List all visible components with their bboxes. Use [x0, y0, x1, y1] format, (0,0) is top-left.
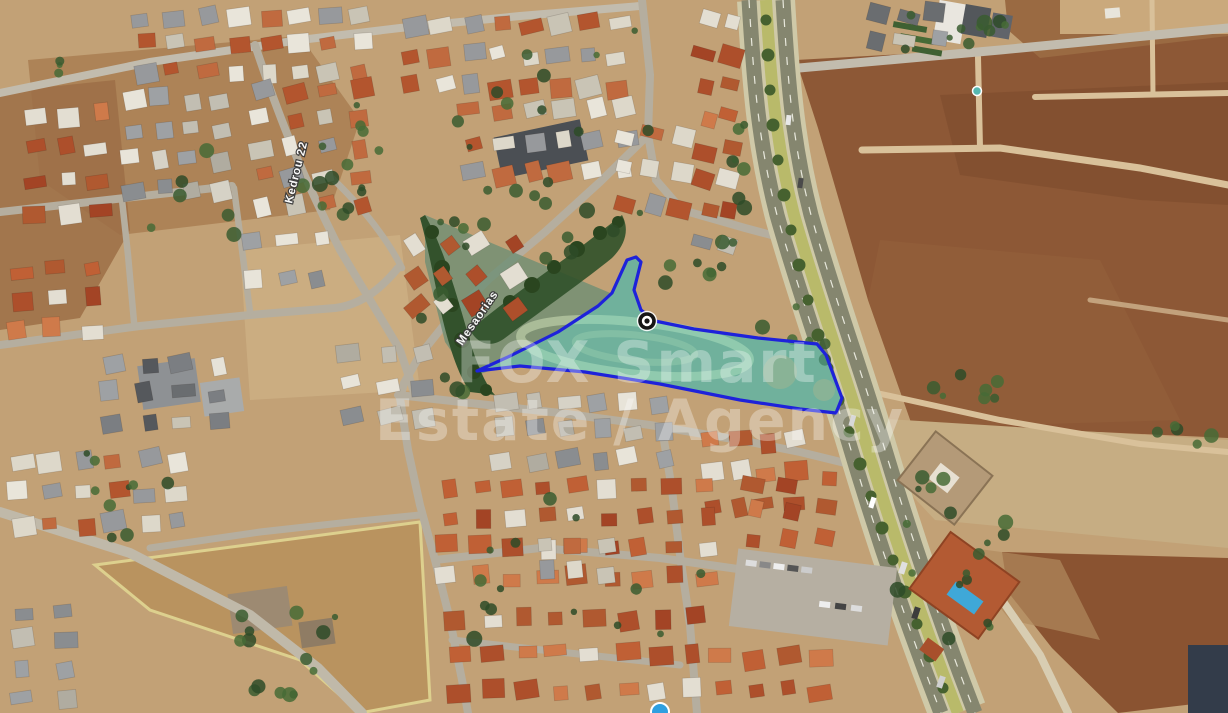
building	[125, 124, 143, 139]
tree	[318, 201, 327, 210]
tree	[632, 28, 638, 34]
building	[749, 684, 765, 698]
building	[443, 512, 458, 526]
tree	[658, 275, 673, 290]
building	[435, 534, 458, 553]
tree	[657, 631, 664, 638]
tree	[915, 470, 929, 484]
tree	[998, 515, 1013, 530]
building	[781, 679, 796, 695]
building	[45, 260, 65, 275]
building	[682, 677, 701, 697]
tree	[572, 514, 579, 521]
tree	[357, 187, 366, 196]
building	[6, 480, 27, 500]
building	[446, 684, 471, 704]
tree	[437, 219, 444, 226]
tree	[342, 202, 354, 214]
building	[350, 171, 371, 186]
tree	[245, 626, 255, 636]
building	[134, 62, 160, 85]
tree	[537, 105, 546, 114]
tree	[449, 216, 460, 227]
tree	[416, 313, 427, 324]
tree	[717, 262, 726, 271]
tree	[90, 456, 100, 466]
map-canvas: Mesaorias Kedrou 22 FOX Smart Estate / A…	[0, 0, 1228, 713]
building	[628, 537, 646, 557]
tree	[927, 381, 940, 394]
tree	[990, 394, 999, 403]
building	[809, 649, 833, 667]
building	[121, 182, 146, 202]
satellite-map[interactable]: Mesaorias Kedrou 22 FOX Smart Estate / A…	[0, 0, 1228, 713]
building	[100, 414, 123, 434]
building	[442, 479, 458, 499]
tree	[173, 189, 187, 203]
tree	[1001, 21, 1009, 29]
tree	[947, 35, 953, 41]
tree	[579, 203, 595, 219]
tree	[319, 143, 327, 151]
building	[57, 107, 80, 128]
tree	[497, 585, 504, 592]
tree	[1170, 421, 1180, 431]
building	[12, 292, 34, 312]
tree	[289, 606, 303, 620]
tree	[300, 653, 312, 665]
building	[226, 6, 251, 27]
building	[527, 453, 549, 473]
building	[22, 206, 45, 224]
tree	[522, 49, 533, 60]
tree	[908, 569, 916, 577]
building	[545, 46, 571, 64]
tree	[275, 687, 287, 699]
building	[317, 109, 333, 126]
building	[742, 649, 766, 671]
tree	[539, 252, 552, 265]
building	[640, 159, 660, 178]
tree	[466, 631, 482, 647]
building	[54, 632, 78, 649]
building	[503, 574, 520, 587]
building	[631, 478, 647, 491]
tree	[740, 121, 748, 129]
building	[671, 161, 694, 183]
building	[661, 478, 682, 495]
building	[165, 33, 184, 49]
building	[288, 113, 305, 130]
building	[538, 538, 552, 552]
building	[62, 172, 76, 185]
building	[647, 682, 666, 701]
tree	[926, 482, 937, 493]
building	[348, 6, 370, 25]
building	[601, 513, 617, 526]
building	[449, 646, 471, 663]
building	[319, 36, 336, 50]
tree	[491, 86, 503, 98]
tree	[940, 393, 946, 399]
tree	[564, 245, 579, 260]
tree	[251, 679, 265, 693]
building	[131, 13, 149, 28]
building	[720, 201, 737, 219]
tree	[696, 569, 705, 578]
building	[723, 139, 743, 156]
tree	[55, 57, 64, 66]
building	[616, 159, 632, 174]
tree	[462, 243, 470, 251]
building	[167, 452, 188, 474]
building	[171, 384, 195, 398]
tree	[147, 223, 156, 232]
tree	[537, 69, 551, 83]
tree	[973, 548, 985, 560]
tree	[915, 486, 921, 492]
tree	[458, 223, 469, 234]
tree	[477, 217, 491, 231]
tree	[956, 581, 963, 588]
building	[551, 98, 576, 119]
building	[581, 161, 602, 180]
building	[15, 660, 29, 678]
building	[354, 32, 373, 49]
building	[492, 136, 515, 151]
tree	[529, 190, 540, 201]
tree	[129, 480, 139, 490]
tree	[737, 162, 751, 176]
tree	[998, 529, 1010, 541]
building	[82, 325, 104, 340]
building	[434, 565, 456, 584]
building	[556, 130, 572, 148]
building	[120, 148, 140, 164]
tree	[693, 259, 702, 268]
tree	[104, 499, 116, 511]
building	[318, 7, 342, 25]
tree	[375, 146, 384, 155]
tree	[54, 69, 63, 78]
tree	[664, 259, 676, 271]
building	[138, 33, 156, 48]
building	[923, 1, 946, 23]
building	[583, 609, 607, 627]
building	[708, 648, 731, 662]
building	[148, 86, 169, 106]
building	[103, 354, 126, 375]
tree	[978, 392, 990, 404]
building	[462, 73, 480, 94]
building	[484, 615, 502, 628]
tree	[176, 175, 189, 188]
building	[699, 542, 718, 558]
tree	[631, 583, 642, 594]
tree	[483, 186, 492, 195]
building	[230, 36, 252, 54]
building	[701, 507, 715, 526]
tree	[901, 45, 910, 54]
building	[655, 610, 671, 630]
tree	[614, 622, 622, 630]
tree	[955, 369, 966, 380]
tree	[574, 127, 584, 137]
building	[746, 534, 760, 548]
tree	[562, 232, 574, 244]
tree	[440, 372, 450, 382]
building	[142, 358, 158, 374]
tree	[342, 159, 354, 171]
building	[715, 680, 732, 695]
building	[57, 136, 75, 155]
tree	[354, 102, 360, 108]
building	[12, 516, 37, 538]
tree	[310, 667, 318, 675]
building	[99, 379, 119, 401]
building	[85, 286, 101, 306]
building	[315, 231, 330, 246]
tree	[222, 209, 235, 222]
tree	[984, 540, 991, 547]
building	[402, 15, 429, 39]
building	[597, 567, 616, 585]
building	[593, 452, 609, 471]
tree	[983, 619, 992, 628]
building	[612, 95, 636, 118]
building	[494, 16, 510, 31]
building	[686, 606, 706, 625]
building	[58, 203, 82, 226]
building	[10, 267, 34, 281]
building	[158, 179, 173, 194]
building	[209, 180, 232, 203]
tree	[543, 492, 557, 506]
building	[75, 485, 91, 499]
tree	[890, 582, 906, 598]
building	[619, 683, 639, 696]
building	[685, 644, 700, 664]
tree	[715, 235, 730, 250]
building	[931, 30, 948, 47]
building	[11, 626, 35, 648]
tree	[474, 574, 486, 586]
building	[443, 611, 465, 632]
building	[667, 565, 683, 583]
building	[184, 93, 202, 111]
building	[696, 478, 713, 492]
building	[617, 610, 639, 632]
building	[36, 451, 63, 474]
building	[24, 108, 47, 126]
building	[426, 47, 451, 69]
building	[57, 689, 77, 709]
tree	[944, 507, 957, 520]
building	[42, 517, 57, 529]
tree	[226, 227, 241, 242]
building	[275, 233, 298, 246]
tree	[907, 11, 916, 20]
tree	[963, 38, 974, 49]
building	[489, 452, 512, 471]
building	[776, 477, 798, 494]
tree	[433, 286, 448, 301]
building	[566, 560, 583, 579]
tree	[325, 171, 339, 185]
building	[814, 528, 835, 547]
tree	[732, 157, 739, 164]
watermark-line1: FOX Smart	[456, 330, 817, 396]
tree	[452, 115, 464, 127]
building	[6, 320, 26, 340]
building	[783, 502, 802, 521]
building	[212, 122, 232, 139]
building	[475, 480, 491, 493]
building	[482, 678, 505, 698]
building	[208, 390, 226, 404]
tree	[593, 52, 599, 58]
building	[249, 107, 269, 125]
tree	[703, 267, 717, 281]
building	[581, 48, 596, 62]
building	[134, 381, 153, 403]
building	[577, 12, 600, 31]
tree	[91, 486, 100, 495]
building	[457, 102, 480, 116]
tree	[991, 375, 1004, 388]
tree	[637, 210, 643, 216]
building	[504, 509, 526, 528]
tree	[543, 177, 553, 187]
tree	[509, 184, 523, 198]
building	[649, 646, 674, 666]
building	[579, 648, 599, 662]
building	[476, 510, 491, 529]
tree	[977, 15, 993, 31]
building	[352, 139, 368, 159]
tree	[732, 192, 745, 205]
building	[465, 14, 485, 34]
building	[162, 10, 185, 28]
building	[637, 507, 654, 524]
tree	[936, 472, 950, 486]
building	[525, 133, 547, 153]
building	[605, 52, 625, 67]
building	[177, 150, 196, 165]
building	[172, 416, 191, 428]
building	[598, 538, 617, 554]
building	[548, 612, 562, 625]
building	[143, 414, 158, 431]
solar-array	[1188, 645, 1228, 713]
building	[480, 645, 505, 663]
building	[543, 644, 566, 657]
building	[78, 518, 96, 536]
building	[464, 42, 487, 61]
building	[122, 89, 147, 111]
building	[585, 684, 602, 701]
building	[194, 36, 216, 52]
building	[15, 608, 33, 620]
building	[209, 412, 230, 429]
building	[597, 479, 617, 499]
building	[261, 10, 282, 28]
building	[152, 149, 169, 170]
building	[89, 203, 112, 217]
building	[539, 507, 556, 522]
building	[308, 270, 325, 289]
building	[401, 74, 420, 93]
tree	[511, 538, 521, 548]
tree	[903, 520, 911, 528]
tree	[539, 197, 552, 210]
building	[104, 454, 121, 469]
tree	[607, 225, 620, 238]
watermark-line2: Estate / Agency	[375, 388, 905, 454]
building	[816, 498, 838, 515]
tree	[957, 24, 966, 33]
building	[56, 661, 75, 680]
tree	[358, 126, 369, 137]
tree	[485, 603, 497, 615]
building	[666, 541, 682, 553]
building	[53, 604, 72, 619]
tree	[1152, 427, 1163, 438]
building	[94, 102, 110, 121]
building	[514, 679, 540, 701]
water-tank	[973, 87, 982, 96]
building	[133, 489, 155, 504]
tree	[199, 143, 214, 158]
building	[553, 686, 568, 701]
building	[698, 78, 715, 95]
building	[156, 121, 174, 139]
building	[780, 528, 799, 548]
tree	[793, 303, 800, 310]
blue-dot	[651, 703, 669, 713]
marker-center-dot	[644, 318, 649, 323]
building	[85, 174, 109, 191]
building	[42, 317, 61, 337]
building	[500, 479, 523, 498]
tree	[162, 477, 175, 490]
tree	[467, 144, 473, 150]
building	[208, 93, 229, 111]
building	[142, 515, 161, 533]
tree	[1204, 428, 1219, 443]
tree	[487, 547, 494, 554]
building	[667, 510, 683, 525]
building	[229, 66, 244, 82]
plot-marker[interactable]	[637, 311, 657, 331]
small-building	[1105, 7, 1121, 18]
tree	[316, 625, 330, 639]
building	[335, 343, 360, 363]
tree	[84, 450, 91, 457]
building	[287, 33, 310, 54]
tree	[120, 528, 134, 542]
building	[616, 642, 641, 661]
building	[163, 62, 179, 75]
tree	[107, 533, 117, 543]
building	[516, 607, 531, 626]
building	[48, 289, 67, 305]
tree	[1193, 440, 1202, 449]
building	[519, 646, 537, 658]
building	[564, 538, 581, 554]
building	[84, 261, 100, 276]
tree	[501, 97, 514, 110]
